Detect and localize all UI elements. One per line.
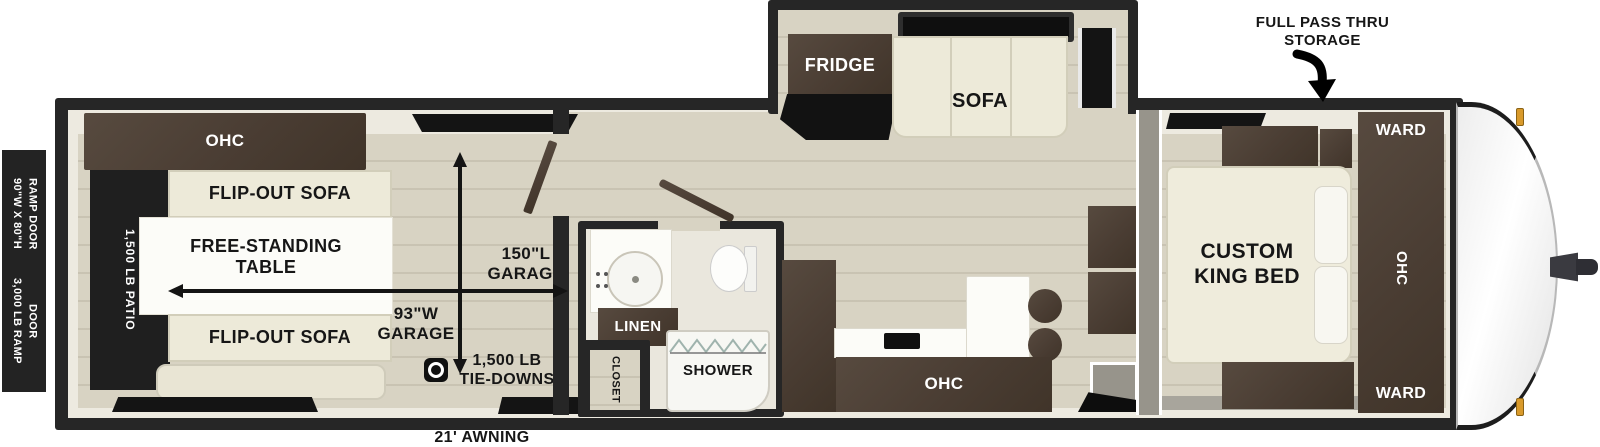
garage-bottom-window — [112, 397, 318, 412]
bed-label-line1: CUSTOM — [1172, 240, 1322, 265]
ramp-size-line1: 90"W X 80"H — [9, 178, 24, 250]
marker-light — [1516, 398, 1524, 416]
garage-bottom-window-2 — [498, 397, 582, 414]
flip-out-sofa-top: FLIP-OUT SOFA — [168, 170, 392, 218]
tie-down-icon — [424, 358, 448, 382]
kitchen-ohc-cabinet: OHC — [836, 357, 1052, 412]
tie-downs-line1: 1,500 LB — [452, 352, 562, 371]
marker-light — [1516, 108, 1524, 126]
shower: SHOWER — [666, 330, 770, 412]
fridge-base — [780, 94, 898, 140]
kitchen-ohc-label: OHC — [925, 374, 964, 394]
patio-label: 1,500 LB PATIO — [123, 229, 137, 331]
sofa-cushion-divider — [950, 38, 952, 136]
bed-foot-cabinet — [1222, 362, 1354, 409]
garage-ohc-cabinet: OHC — [84, 113, 366, 170]
sofa-cushion-divider — [1010, 38, 1012, 136]
rv-floorplan: 90"W X 80"H RAMP DOOR 3,000 LB RAMP DOOR… — [0, 0, 1600, 447]
bedroom-ohc-head-cabinet-2 — [1320, 129, 1352, 168]
fridge-label: FRIDGE — [805, 55, 875, 76]
kitchen-island — [966, 276, 1030, 364]
fridge: FRIDGE — [788, 34, 892, 98]
front-nose-cap — [1456, 102, 1558, 430]
garage-width-line2: GARAGE — [360, 324, 472, 344]
flip-out-sofa-bottom-label: FLIP-OUT SOFA — [209, 327, 351, 348]
slideout-window — [1078, 28, 1116, 108]
bedroom-partition-wall — [1136, 110, 1162, 415]
ramp-door-capacity-label: 3,000 LB RAMP DOOR — [9, 278, 40, 364]
ramp-door-panel: 90"W X 80"H RAMP DOOR 3,000 LB RAMP DOOR — [2, 150, 46, 392]
flip-out-sofa-bottom: FLIP-OUT SOFA — [168, 314, 392, 362]
garage-width-line1: 93"W — [360, 304, 472, 324]
closet: CLOSET — [590, 350, 640, 410]
table-label-line1: FREE-STANDING — [140, 236, 392, 257]
shower-label: SHOWER — [668, 362, 768, 380]
ramp-cap-line1: 3,000 LB RAMP — [9, 278, 24, 364]
kitchen-tall-cabinet — [782, 260, 836, 412]
flip-out-sofa-top-label: FLIP-OUT SOFA — [209, 183, 351, 204]
tie-downs-line2: TIE-DOWNS — [452, 371, 562, 390]
garage-ohc-label: OHC — [206, 131, 245, 151]
slideout-sofa: SOFA — [892, 36, 1068, 138]
table-label-line2: TABLE — [140, 257, 392, 278]
pass-thru-line2: STORAGE — [1230, 32, 1415, 50]
shower-glass-icon — [668, 336, 768, 356]
free-standing-table-label: FREE-STANDING TABLE — [140, 236, 392, 278]
hitch-jack — [1576, 259, 1598, 275]
faucet-icon — [596, 272, 600, 276]
tv-cabinet-upper — [1088, 206, 1136, 268]
ramp-door-size-label: 90"W X 80"H RAMP DOOR — [9, 178, 40, 250]
dinette-chair — [1028, 289, 1062, 323]
toilet-bowl — [710, 245, 748, 292]
tv-cabinet-lower — [1088, 272, 1136, 334]
free-standing-table: FREE-STANDING TABLE — [140, 218, 392, 314]
tie-downs-label: 1,500 LB TIE-DOWNS — [452, 352, 562, 390]
garage-bench — [156, 364, 386, 400]
king-bed-label: CUSTOM KING BED — [1172, 240, 1322, 290]
ramp-size-line2: RAMP DOOR — [24, 178, 39, 250]
cooktop — [884, 333, 920, 349]
awning-label: 21' AWNING — [400, 429, 564, 447]
wardrobe-bottom-label: WARD — [1358, 385, 1444, 404]
linen-label: LINEN — [615, 318, 662, 336]
bedroom-ohc-label-wrap: OHC — [1358, 238, 1444, 298]
pass-thru-line1: FULL PASS THRU — [1230, 14, 1415, 32]
bedroom-ohc-label: OHC — [1392, 251, 1410, 286]
pass-thru-storage-label: FULL PASS THRU STORAGE — [1230, 14, 1415, 49]
sink-drain — [632, 276, 639, 283]
pass-thru-arrow-icon — [1297, 54, 1322, 84]
wardrobe-top-label: WARD — [1358, 122, 1444, 141]
bedroom-ohc-head-cabinet — [1222, 126, 1318, 168]
sofa-label: SOFA — [894, 90, 1066, 114]
ramp-cap-line2: DOOR — [24, 278, 39, 364]
garage-width-label: 93"W GARAGE — [360, 304, 472, 344]
bed-label-line2: KING BED — [1172, 265, 1322, 290]
closet-label: CLOSET — [609, 356, 622, 403]
